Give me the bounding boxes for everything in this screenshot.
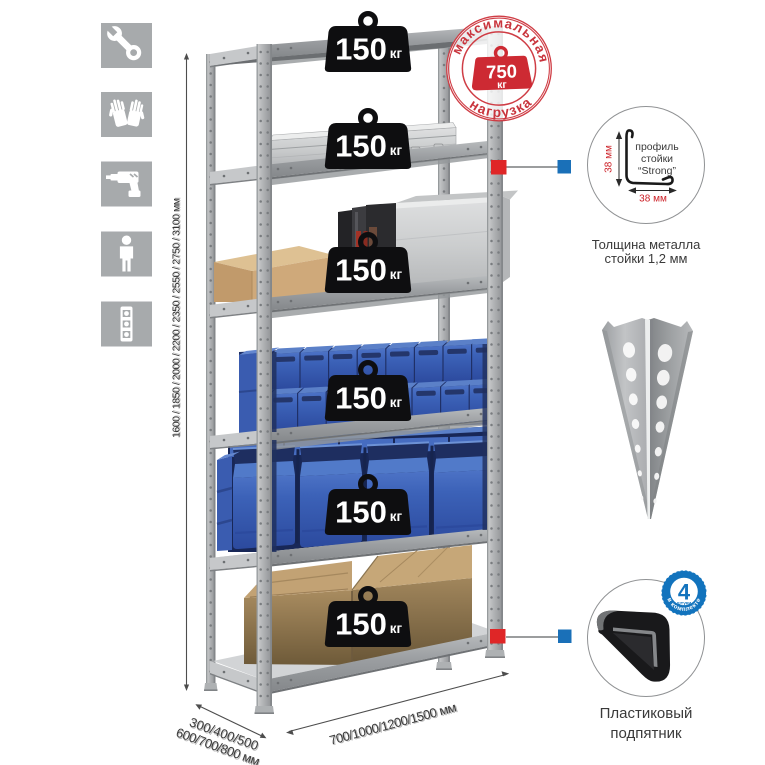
svg-text:кг: кг [390, 509, 403, 524]
svg-text:кг: кг [390, 395, 403, 410]
svg-text:профиль: профиль [635, 141, 679, 153]
svg-text:кг: кг [497, 79, 508, 91]
svg-text:стойки 1,2 мм: стойки 1,2 мм [605, 251, 688, 266]
svg-text:38 мм: 38 мм [604, 145, 615, 173]
svg-text:150: 150 [335, 32, 387, 67]
svg-text:стойки: стойки [641, 153, 673, 165]
svg-text:кг: кг [390, 143, 403, 158]
svg-text:кг: кг [390, 267, 403, 282]
svg-text:150: 150 [335, 253, 387, 288]
svg-text:150: 150 [335, 381, 387, 416]
svg-text:подпятник: подпятник [610, 725, 682, 742]
svg-text:Пластиковый: Пластиковый [600, 705, 693, 722]
svg-text:150: 150 [335, 607, 387, 642]
svg-text:150: 150 [335, 129, 387, 164]
svg-text:“Strong”: “Strong” [638, 165, 676, 177]
svg-text:1600 / 1850 / 2000 / 2200 / 23: 1600 / 1850 / 2000 / 2200 / 2350 / 2550 … [171, 198, 183, 438]
svg-text:кг: кг [390, 621, 403, 636]
svg-text:38 мм: 38 мм [639, 194, 667, 205]
svg-text:кг: кг [390, 46, 403, 61]
svg-text:150: 150 [335, 495, 387, 530]
svg-text:Толщина металла: Толщина металла [592, 237, 701, 252]
